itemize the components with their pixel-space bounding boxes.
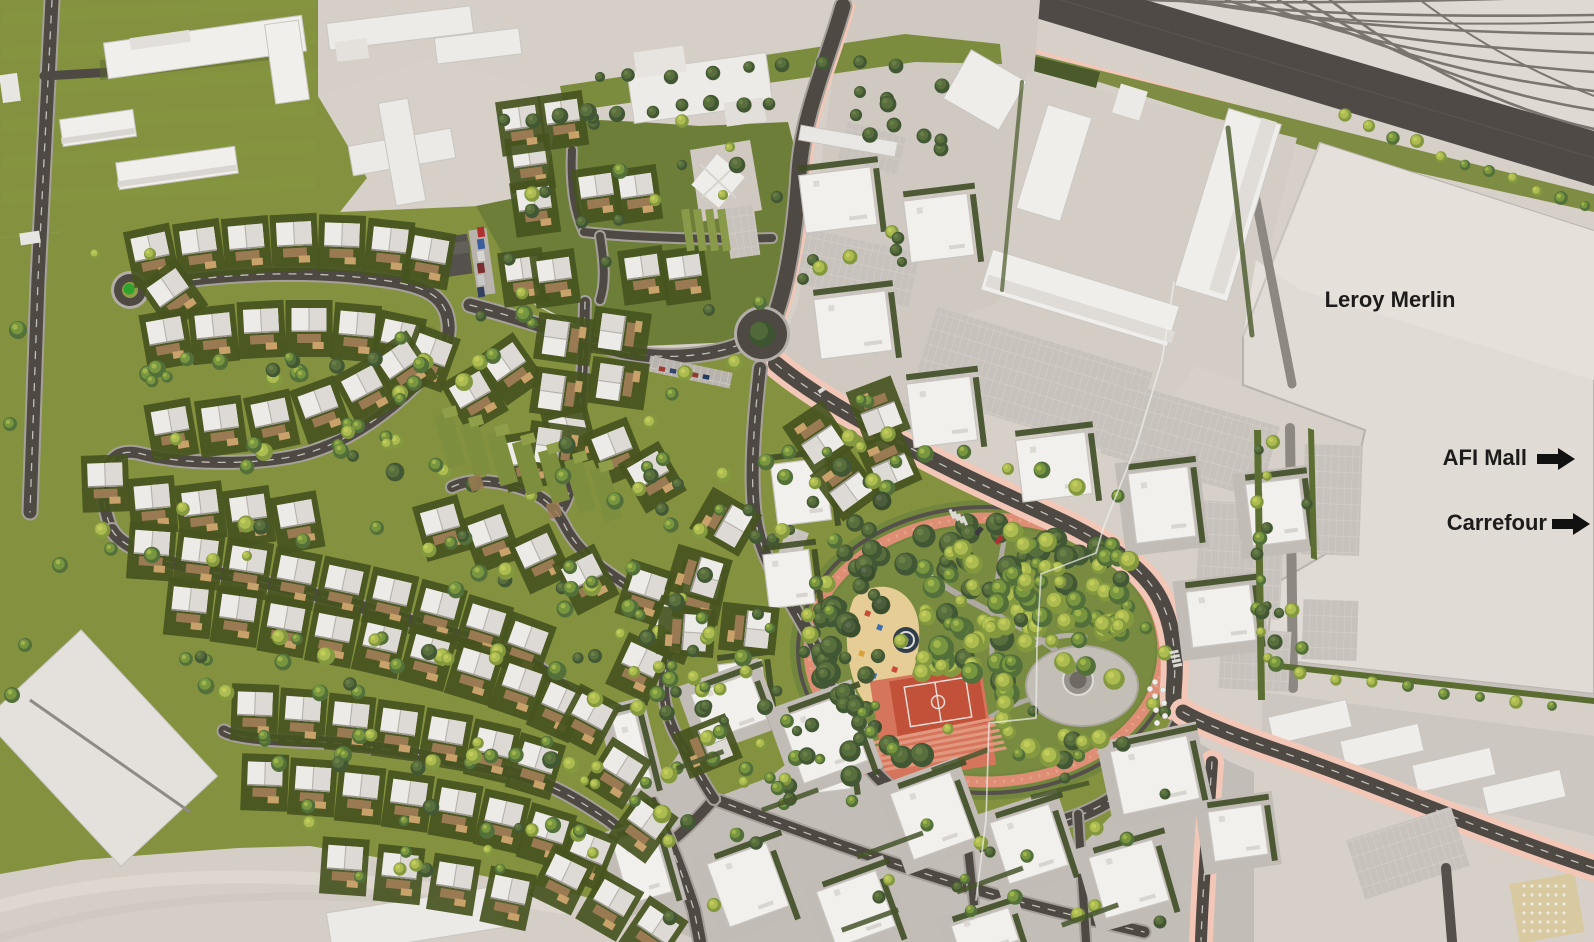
svg-text:AFI Mall: AFI Mall xyxy=(1443,445,1527,470)
svg-text:Leroy Merlin: Leroy Merlin xyxy=(1325,287,1456,312)
svg-text:Carrefour: Carrefour xyxy=(1447,510,1548,535)
